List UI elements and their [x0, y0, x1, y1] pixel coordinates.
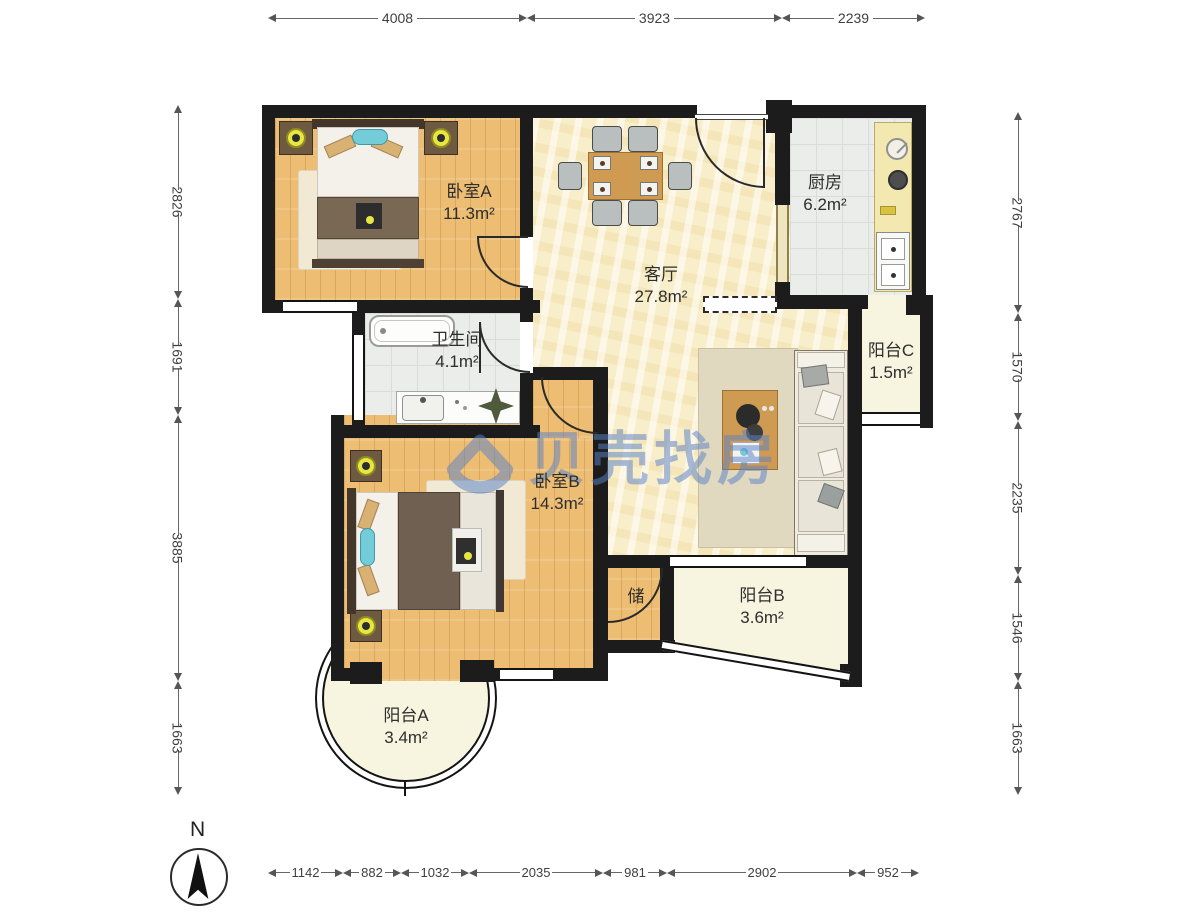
- window: [352, 335, 365, 420]
- dim-right-3: 2235: [1005, 421, 1031, 575]
- dim-bottom-5: 981: [603, 865, 667, 880]
- faucet-icon: [886, 138, 908, 160]
- dim-right-2: 1570: [1005, 313, 1031, 421]
- dim-left-1: 2826: [165, 105, 191, 299]
- toiletry-dot: [455, 400, 459, 404]
- dim-bottom-6: 2902: [667, 865, 857, 880]
- placemat-dot: [600, 161, 605, 166]
- dining-chair: [592, 200, 622, 226]
- toiletry-dot: [463, 406, 467, 410]
- bed-headboard: [347, 488, 356, 614]
- window: [670, 555, 806, 568]
- dining-chair: [628, 200, 658, 226]
- bedroom-a-door-leaf: [477, 236, 528, 238]
- burner-dot: [891, 247, 896, 252]
- sink-basin: [888, 170, 908, 190]
- dim-bottom-1: 1142: [268, 865, 343, 880]
- wall: [331, 415, 344, 681]
- dim-right-1: 2767: [1005, 112, 1031, 313]
- lamp-dot: [437, 134, 445, 142]
- wall: [775, 282, 790, 309]
- wall: [262, 105, 275, 313]
- dim-top-2: 3923: [527, 10, 782, 26]
- dim-top-1: 4008: [268, 10, 527, 26]
- lamp-dot: [362, 462, 370, 470]
- bed-foot: [317, 239, 419, 259]
- compass-needle: [178, 853, 218, 899]
- beike-logo-icon: [432, 412, 528, 508]
- room-label-storage: 储: [628, 586, 645, 608]
- wall: [520, 105, 533, 237]
- room-label-bedroom-b: 卧室B 14.3m²: [531, 471, 584, 515]
- bed-tray-box: [456, 538, 476, 564]
- faucet-dot: [420, 397, 426, 403]
- wall: [912, 105, 926, 315]
- room-label-balcony-a: 阳台A 3.4m²: [383, 705, 428, 749]
- pillow-teal: [352, 129, 388, 145]
- kitchen-sliding-door: [776, 205, 789, 282]
- dim-bottom-4: 2035: [469, 865, 603, 880]
- dim-bottom-3: 1032: [401, 865, 469, 880]
- room-label-balcony-c: 阳台C 1.5m²: [868, 340, 914, 384]
- lamp-dot: [362, 622, 370, 630]
- dim-right-4: 1546: [1005, 575, 1031, 681]
- wall: [520, 288, 533, 322]
- compass-icon: [170, 848, 228, 906]
- kitchen-item: [880, 206, 896, 215]
- dining-chair: [628, 126, 658, 152]
- wall-opening-dashed: [703, 296, 777, 313]
- window: [283, 300, 357, 313]
- dim-top-3: 2239: [782, 10, 925, 26]
- balcony-a-window-tick: [404, 780, 406, 796]
- dining-chair: [592, 126, 622, 152]
- wall: [920, 295, 933, 428]
- wall: [350, 662, 382, 684]
- bed-tray-dot: [464, 552, 472, 560]
- bed-tray-dot: [366, 216, 374, 224]
- dim-left-4: 1663: [165, 681, 191, 795]
- pillow-teal: [360, 528, 375, 566]
- bathtub-drain: [380, 328, 386, 334]
- placemat-dot: [647, 187, 652, 192]
- window: [500, 668, 553, 681]
- tray-dot: [769, 406, 774, 411]
- bed-footboard: [312, 259, 424, 268]
- room-label-living: 客厅 27.8m²: [635, 264, 688, 308]
- placemat-dot: [600, 187, 605, 192]
- tray-dot: [762, 406, 767, 411]
- entry-door-leaf: [763, 118, 765, 188]
- sofa-armrest: [797, 534, 845, 552]
- room-label-kitchen: 厨房 6.2m²: [803, 172, 846, 216]
- dim-bottom-2: 882: [343, 865, 401, 880]
- room-label-bathroom: 卫生间 4.1m²: [432, 329, 483, 373]
- watermark: 贝壳找房: [432, 412, 780, 508]
- floorplan-canvas: 贝壳找房 卧室A 11.3m² 客厅 27.8m² 厨房 6.2m² 卫生间 4…: [0, 0, 1204, 913]
- bed-blanket: [398, 492, 460, 610]
- dining-chair: [668, 162, 692, 190]
- wall: [848, 300, 862, 684]
- dining-chair: [558, 162, 582, 190]
- compass-north-label: N: [190, 818, 205, 842]
- room-label-bedroom-a: 卧室A 11.3m²: [443, 181, 495, 225]
- bed-footboard: [496, 490, 504, 612]
- dim-left-3: 3885: [165, 415, 191, 681]
- wall: [262, 105, 697, 118]
- dim-bottom-7: 952: [857, 865, 919, 880]
- placemat-dot: [647, 161, 652, 166]
- wall: [460, 660, 494, 682]
- dim-left-2: 1691: [165, 299, 191, 415]
- lamp-dot: [292, 134, 300, 142]
- window: [862, 412, 920, 426]
- sofa-headrest: [801, 364, 830, 387]
- dim-right-5: 1663: [1005, 681, 1031, 795]
- burner-dot: [891, 273, 896, 278]
- wall: [775, 105, 790, 205]
- room-label-balcony-b: 阳台B 3.6m²: [739, 585, 784, 629]
